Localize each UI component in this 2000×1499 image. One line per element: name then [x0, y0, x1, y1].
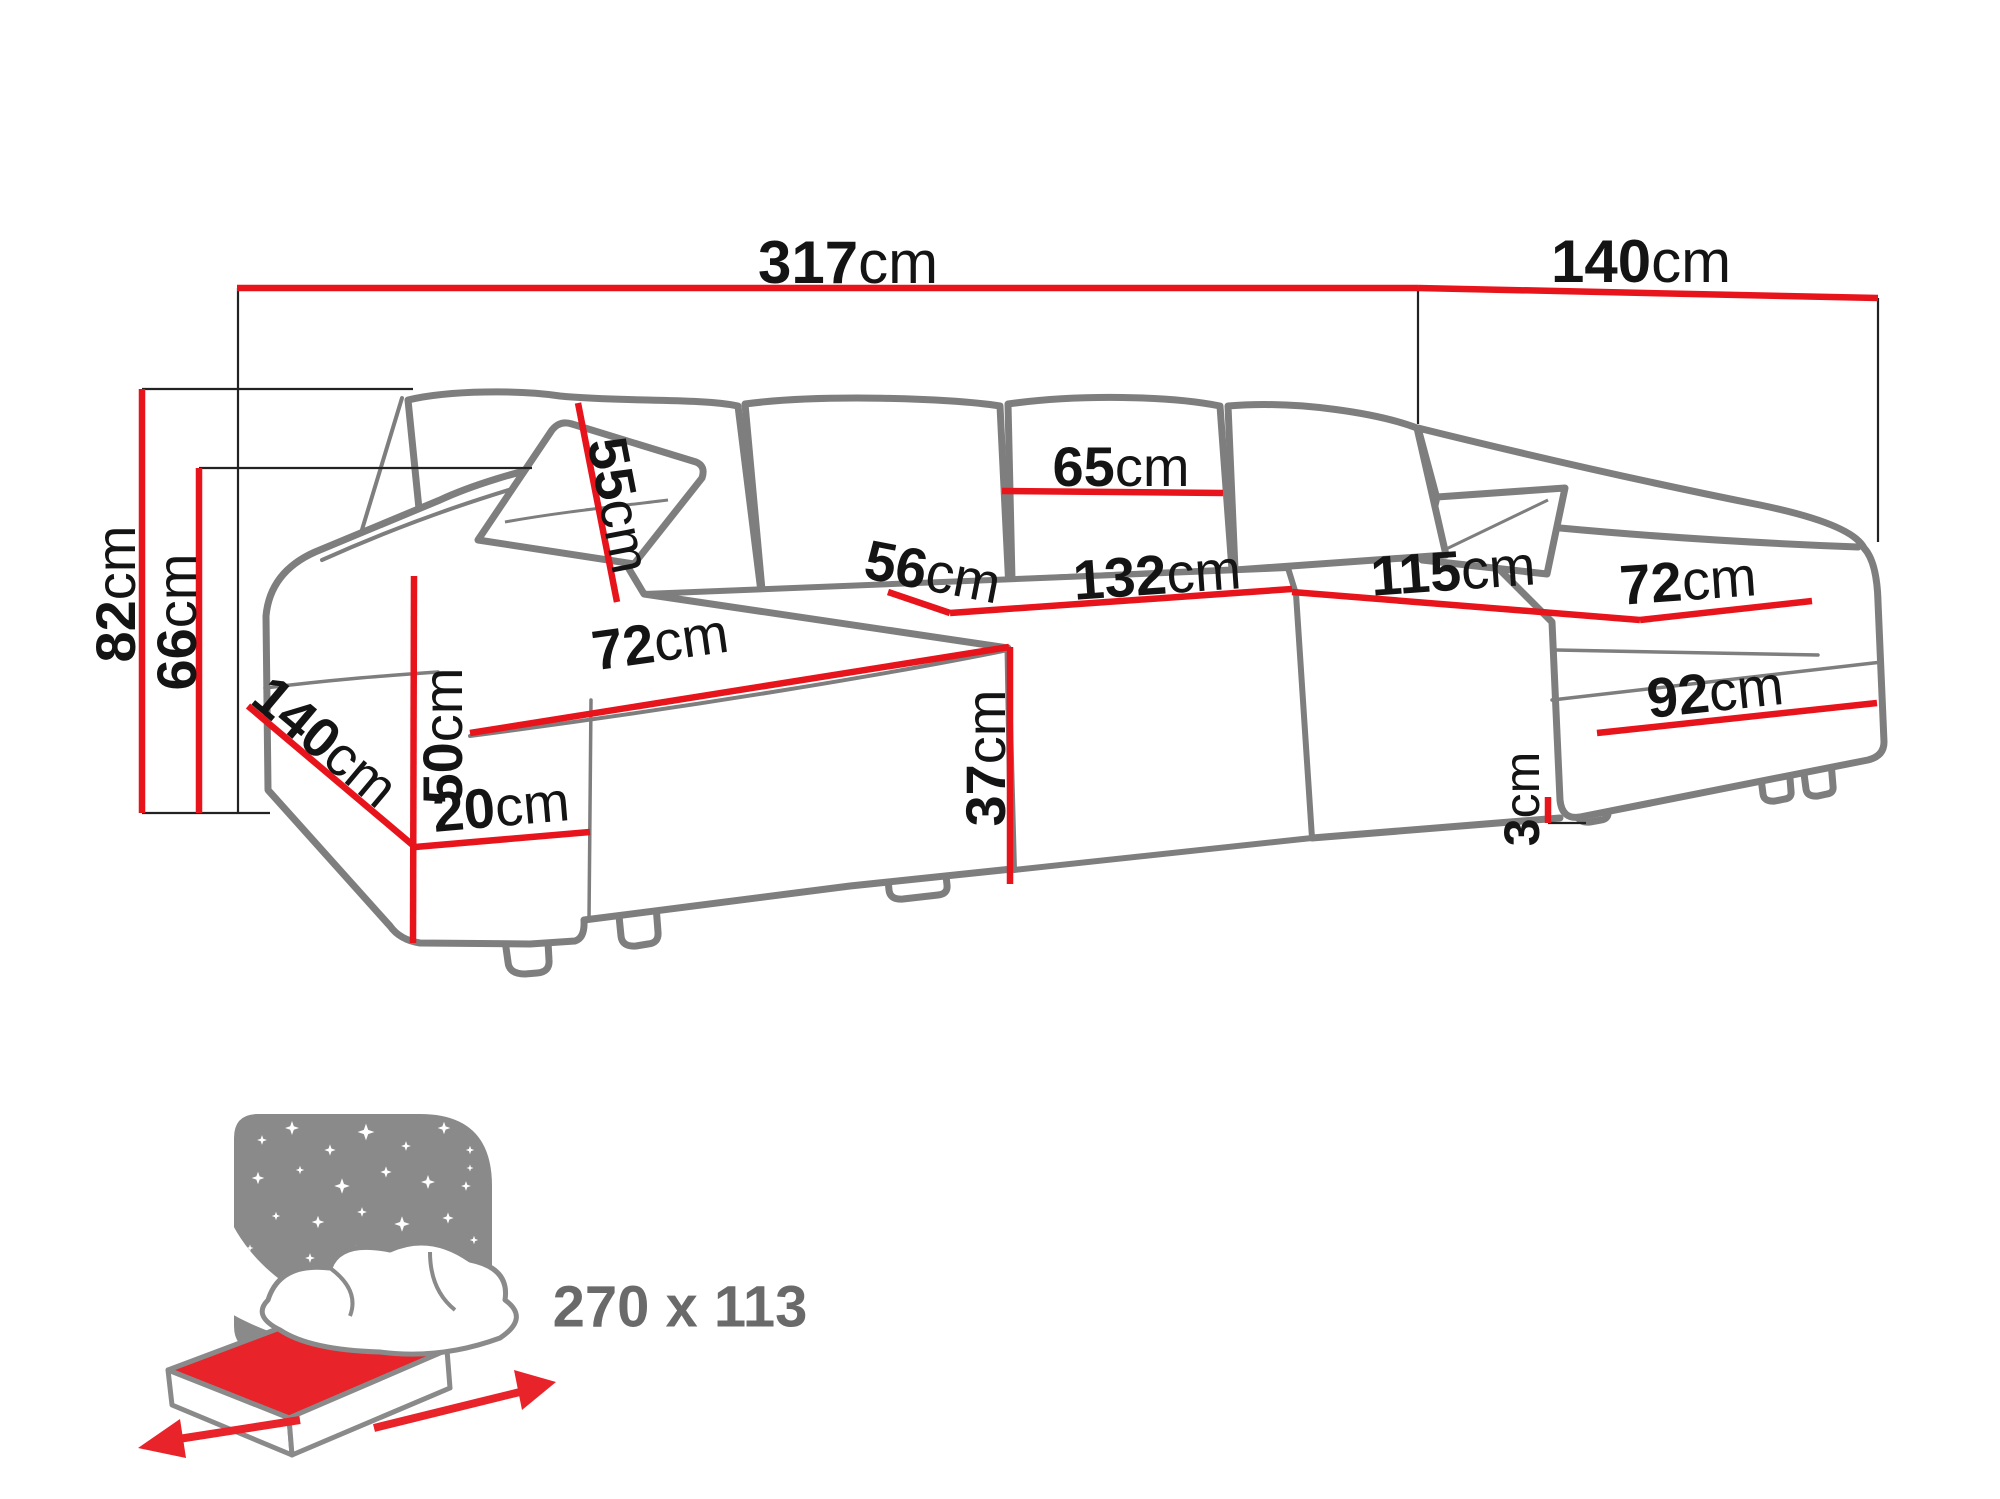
pull-arrow-left-head	[138, 1419, 186, 1458]
sleeping-area-label: 270 x 113	[553, 1275, 808, 1340]
sleeping-function-icon: 270 x 113	[138, 1112, 807, 1458]
left-front-vertical-seam	[589, 700, 591, 920]
label-total-height: 82cm	[84, 526, 147, 663]
label-right-seat-width: 72cm	[1617, 544, 1758, 616]
label-middle-seat-width: 132cm	[1071, 537, 1243, 612]
label-back-cushion-width: 65cm	[1053, 435, 1190, 498]
label-seat-height: 37cm	[954, 690, 1017, 827]
sofa-dimension-diagram: 317cm 140cm 82cm 66cm 55cm 65cm 56cm 132…	[0, 0, 2000, 1499]
label-right-seat-length: 115cm	[1369, 533, 1538, 607]
diagram-canvas: 317cm 140cm 82cm 66cm 55cm 65cm 56cm 132…	[0, 0, 2000, 1499]
right-chaise-body	[1418, 428, 1884, 817]
label-leg-height: 3cm	[1494, 752, 1550, 846]
label-arm-bottom-width: 20cm	[430, 769, 572, 844]
label-right-depth: 140cm	[1551, 228, 1731, 295]
pull-arrow-right-head	[514, 1370, 556, 1410]
label-total-width: 317cm	[758, 229, 938, 296]
label-arm-height: 66cm	[145, 554, 208, 691]
